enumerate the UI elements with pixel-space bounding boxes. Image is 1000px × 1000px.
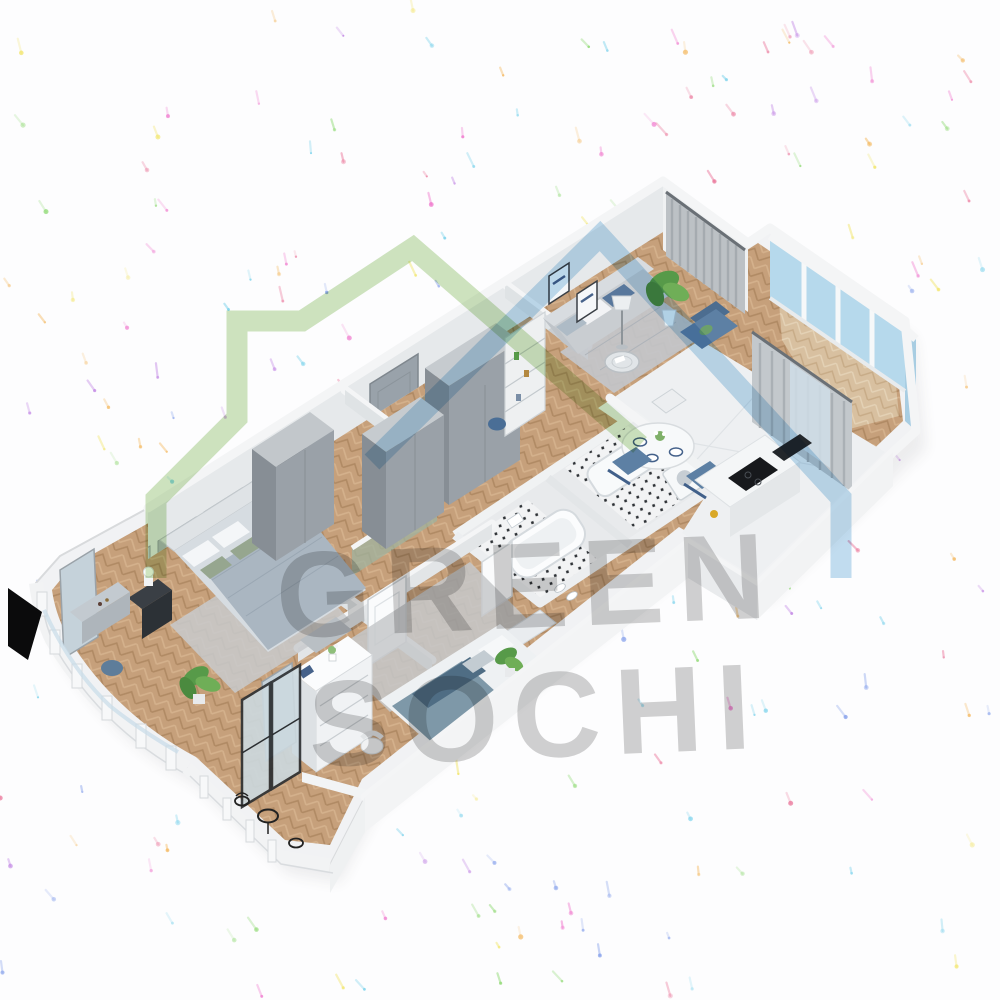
hall-stool xyxy=(488,418,506,431)
coffee-table xyxy=(605,352,639,373)
watermark-line-2: SOCHI xyxy=(306,638,768,793)
pouf xyxy=(101,660,123,676)
floorplan-render: GREEN SOCHI xyxy=(0,0,1000,1000)
floorplan-canvas: GREEN SOCHI xyxy=(0,0,1000,1000)
perfume-bottles xyxy=(98,602,102,606)
watermark: GREEN SOCHI xyxy=(273,507,788,794)
plant-pot xyxy=(193,694,205,704)
plate xyxy=(670,448,683,456)
